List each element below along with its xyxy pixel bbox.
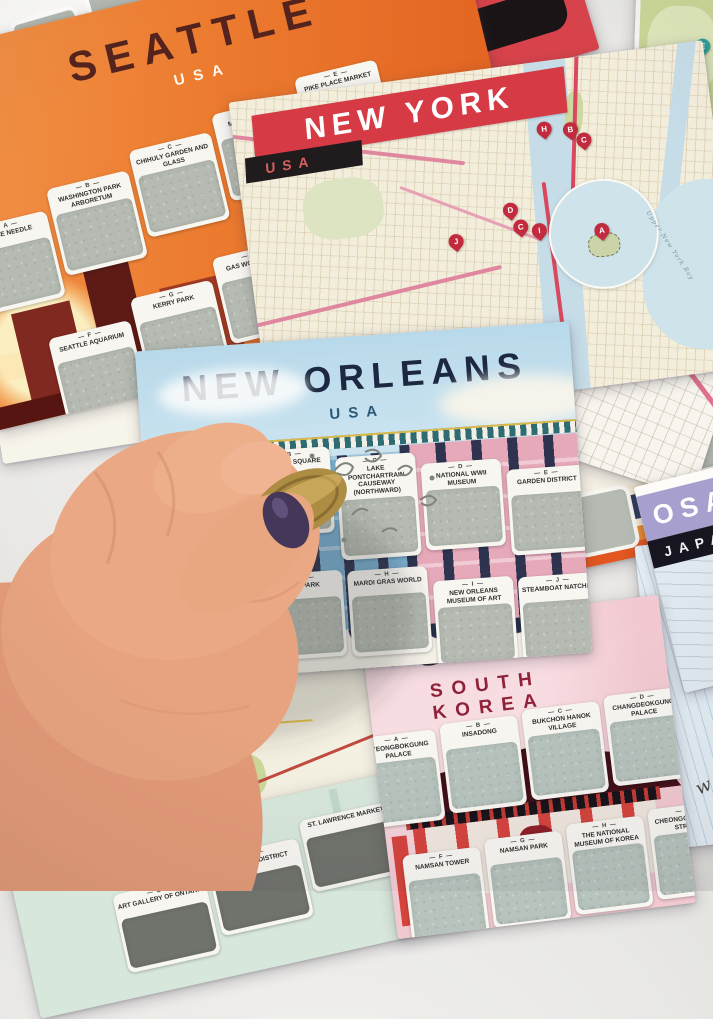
new-orleans-card: NEW ORLEANS USA — A —French Quarter— B —… — [135, 321, 592, 683]
scratch-tile-garden-district: — E —Garden District — [506, 464, 592, 555]
scratch-foil — [425, 486, 503, 547]
scratch-tile-new-orleans-museum-of-art: — I —New Orleans Museum of Art — [433, 576, 519, 669]
scratch-foil — [445, 741, 524, 809]
scratch-tile-audubon-park: — F —Audubon Park — [177, 568, 263, 659]
scratch-foil — [352, 592, 430, 653]
scratch-tile-distillery-district: — D —Distillery District — [205, 838, 314, 936]
scratch-tile-namsan-tower: — F —Namsan Tower — [402, 847, 490, 940]
scratch-tile-namsan-park: — G —Namsan Park — [484, 830, 572, 929]
scratch-tile-insadong: — B —Insadong — [439, 715, 527, 814]
scratch-foil — [254, 472, 332, 533]
scratch-foil — [267, 596, 345, 657]
scratch-tile-steamboat-natchez: — J —Steamboat Natchez — [518, 572, 592, 663]
scratch-tile-french-quarter: — A —French Quarter — [164, 440, 250, 531]
scratch-tile-city-park: — G —City Park — [262, 570, 348, 661]
scratch-foil — [341, 495, 419, 556]
scratch-tile-national-wwii-museum: — D —National WWII Museum — [420, 458, 506, 551]
scratch-foil — [438, 603, 516, 664]
scratch-foil — [181, 594, 259, 655]
scratch-tile-lake-pontchartrain-causeway-northward: — C —Lake Pontchartrain Causeway (Northw… — [335, 452, 422, 560]
scratch-tile-bukchon-hanok-village: — C —Bukchon Hanok Village — [521, 701, 610, 801]
scratch-foil — [572, 843, 651, 911]
scratch-tile-chihuly-garden-and-glass: — C —Chihuly Garden and Glass — [128, 132, 231, 238]
scratch-tile-jackson-square: — B —Jackson Square — [249, 446, 335, 537]
scratch-tile-mardi-gras-world: — H —Mardi Gras World — [347, 566, 433, 657]
scratch-foil — [408, 873, 487, 939]
tile-row: — A —French Quarter— B —Jackson Square— … — [164, 417, 590, 549]
scratch-foil — [527, 728, 606, 796]
scratch-foil — [511, 491, 589, 552]
tile-label: Lake Pontchartrain Causeway (Northward) — [339, 462, 415, 498]
photo-scene: { "watermarks": { "scratchtrip": "www.sc… — [0, 0, 713, 891]
scratch-foil — [168, 466, 246, 527]
scratch-foil — [522, 598, 592, 659]
scratch-tile-the-national-museum-of-korea: — H —The National Museum of Korea — [565, 815, 654, 915]
scratch-tile-art-gallery-of-ontario: — C —Art Gallery of Ontario — [112, 875, 221, 973]
